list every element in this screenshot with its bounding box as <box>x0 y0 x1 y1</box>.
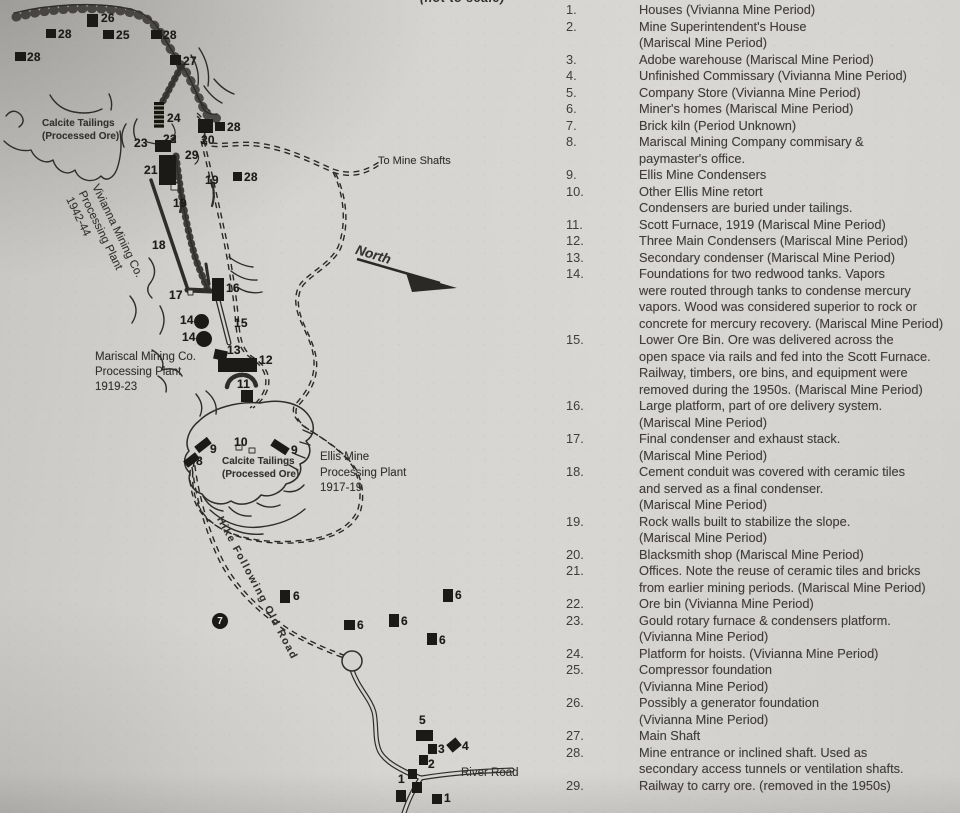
legend-item-number: 2. <box>566 19 577 36</box>
legend-text-line: Miner's homes (Mariscal Mine Period) <box>639 101 959 118</box>
legend-item-number: 17. <box>566 431 584 448</box>
legend-text-line: were routed through tanks to condense me… <box>639 283 959 300</box>
legend-text-line: Condensers are buried under tailings. <box>639 200 959 217</box>
legend-item-text: Offices. Note the reuse of ceramic tiles… <box>639 563 959 596</box>
legend-item-4: 4.Unfinished Commissary (Vivianna Mine P… <box>566 68 959 85</box>
legend-text-line: Company Store (Vivianna Mine Period) <box>639 85 959 102</box>
legend-text-line: Possibly a generator foundation <box>639 695 959 712</box>
legend-item-number: 9. <box>566 167 577 184</box>
legend-item-text: Three Main Condensers (Mariscal Mine Per… <box>639 233 959 250</box>
legend-text-line: (Vivianna Mine Period) <box>639 679 959 696</box>
legend-item-number: 16. <box>566 398 584 415</box>
legend-item-text: Main Shaft <box>639 728 959 745</box>
legend-item-number: 29. <box>566 778 584 795</box>
legend-text-line: Mariscal Mining Company commisary & <box>639 134 959 151</box>
legend-item-25: 25.Compressor foundation(Vivianna Mine P… <box>566 662 959 695</box>
legend-text-line: Ore bin (Vivianna Mine Period) <box>639 596 959 613</box>
legend-text-line: paymaster's office. <box>639 151 959 168</box>
legend-item-8: 8.Mariscal Mining Company commisary &pay… <box>566 134 959 167</box>
legend-item-text: Ore bin (Vivianna Mine Period) <box>639 596 959 613</box>
legend-item-number: 13. <box>566 250 584 267</box>
legend-item-number: 19. <box>566 514 584 531</box>
legend-item-text: Miner's homes (Mariscal Mine Period) <box>639 101 959 118</box>
legend-text-line: vapors. Wood was considered superior to … <box>639 299 959 316</box>
legend-item-text: Company Store (Vivianna Mine Period) <box>639 85 959 102</box>
legend-item-text: Ellis Mine Condensers <box>639 167 959 184</box>
legend-item-number: 6. <box>566 101 577 118</box>
legend-item-text: Rock walls built to stabilize the slope.… <box>639 514 959 547</box>
legend-text-line: Foundations for two redwood tanks. Vapor… <box>639 266 959 283</box>
legend-text-line: (Vivianna Mine Period) <box>639 712 959 729</box>
legend-item-number: 23. <box>566 613 584 630</box>
legend-item-number: 14. <box>566 266 584 283</box>
legend-item-number: 21. <box>566 563 584 580</box>
legend-item-23: 23.Gould rotary furnace & condensers pla… <box>566 613 959 646</box>
legend-item-text: Platform for hoists. (Vivianna Mine Peri… <box>639 646 959 663</box>
legend-item-7: 7.Brick kiln (Period Unknown) <box>566 118 959 135</box>
legend-item-number: 27. <box>566 728 584 745</box>
legend-item-2: 2.Mine Superintendent's House(Mariscal M… <box>566 19 959 52</box>
legend-item-number: 18. <box>566 464 584 481</box>
legend-text-line: Large platform, part of ore delivery sys… <box>639 398 959 415</box>
legend-text-line: Mine entrance or inclined shaft. Used as <box>639 745 959 762</box>
legend-item-20: 20.Blacksmith shop (Mariscal Mine Period… <box>566 547 959 564</box>
legend-item-28: 28.Mine entrance or inclined shaft. Used… <box>566 745 959 778</box>
legend-item-text: Brick kiln (Period Unknown) <box>639 118 959 135</box>
legend-item-text: Adobe warehouse (Mariscal Mine Period) <box>639 52 959 69</box>
legend-text-line: (Vivianna Mine Period) <box>639 629 959 646</box>
legend-text-line: from earlier mining periods. (Mariscal M… <box>639 580 959 597</box>
legend-item-number: 3. <box>566 52 577 69</box>
legend-item-29: 29.Railway to carry ore. (removed in the… <box>566 778 959 795</box>
legend-text-line: Secondary condenser (Mariscal Mine Perio… <box>639 250 959 267</box>
legend-item-text: Mine entrance or inclined shaft. Used as… <box>639 745 959 778</box>
map-labels-layer: Calcite Tailings (Processed Ore)Vivianna… <box>0 0 570 813</box>
legend-text-line: Offices. Note the reuse of ceramic tiles… <box>639 563 959 580</box>
legend-item-text: Large platform, part of ore delivery sys… <box>639 398 959 431</box>
legend-item-text: Possibly a generator foundation(Vivianna… <box>639 695 959 728</box>
legend-item-13: 13.Secondary condenser (Mariscal Mine Pe… <box>566 250 959 267</box>
legend-item-number: 5. <box>566 85 577 102</box>
page-title-fragment: (not to scale) <box>420 0 505 5</box>
legend-item-text: Lower Ore Bin. Ore was delivered across … <box>639 332 959 398</box>
legend-text-line: Ellis Mine Condensers <box>639 167 959 184</box>
legend-item-number: 28. <box>566 745 584 762</box>
legend-text-line: (Mariscal Mine Period) <box>639 35 959 52</box>
map-label-ellis-plant: Ellis Mine Processing Plant 1917-19 <box>320 450 406 497</box>
legend-item-number: 10. <box>566 184 584 201</box>
legend-item-1: 1.Houses (Vivianna Mine Period) <box>566 2 959 19</box>
legend-item-text: Cement conduit was covered with ceramic … <box>639 464 959 514</box>
legend-text-line: Unfinished Commissary (Vivianna Mine Per… <box>639 68 959 85</box>
legend-text-line: Other Ellis Mine retort <box>639 184 959 201</box>
legend-item-text: Blacksmith shop (Mariscal Mine Period) <box>639 547 959 564</box>
legend-item-11: 11.Scott Furnace, 1919 (Mariscal Mine Pe… <box>566 217 959 234</box>
legend-text-line: Adobe warehouse (Mariscal Mine Period) <box>639 52 959 69</box>
legend-item-number: 22. <box>566 596 584 613</box>
legend-text-line: Railway to carry ore. (removed in the 19… <box>639 778 959 795</box>
legend-item-21: 21.Offices. Note the reuse of ceramic ti… <box>566 563 959 596</box>
legend-text-line: (Mariscal Mine Period) <box>639 415 959 432</box>
legend-item-text: Mariscal Mining Company commisary &payma… <box>639 134 959 167</box>
legend-text-line: Mine Superintendent's House <box>639 19 959 36</box>
map-label-river-road: River Road <box>461 767 519 780</box>
legend-text-line: Gould rotary furnace & condensers platfo… <box>639 613 959 630</box>
legend-text-line: Brick kiln (Period Unknown) <box>639 118 959 135</box>
map-label-calcite-tailings-lower: Calcite Tailings (Processed Ore) <box>222 456 299 481</box>
legend-text-line: secondary access tunnels or ventilation … <box>639 761 959 778</box>
legend-item-24: 24.Platform for hoists. (Vivianna Mine P… <box>566 646 959 663</box>
legend-item-number: 20. <box>566 547 584 564</box>
legend-item-22: 22.Ore bin (Vivianna Mine Period) <box>566 596 959 613</box>
legend-item-text: Railway to carry ore. (removed in the 19… <box>639 778 959 795</box>
legend-item-27: 27.Main Shaft <box>566 728 959 745</box>
legend-item-15: 15.Lower Ore Bin. Ore was delivered acro… <box>566 332 959 398</box>
legend-text-line: open space via rails and fed into the Sc… <box>639 349 959 366</box>
legend-item-text: Final condenser and exhaust stack.(Maris… <box>639 431 959 464</box>
legend-item-text: Houses (Vivianna Mine Period) <box>639 2 959 19</box>
map-label-calcite-tailings-upper: Calcite Tailings (Processed Ore) <box>42 118 119 143</box>
legend-text-line: Platform for hoists. (Vivianna Mine Peri… <box>639 646 959 663</box>
map-label-hike-following-old-road: Hike Following Old Road <box>214 515 299 662</box>
legend-item-text: Scott Furnace, 1919 (Mariscal Mine Perio… <box>639 217 959 234</box>
legend-item-19: 19.Rock walls built to stabilize the slo… <box>566 514 959 547</box>
legend-item-number: 26. <box>566 695 584 712</box>
legend-text-line: Cement conduit was covered with ceramic … <box>639 464 959 481</box>
legend-item-10: 10.Other Ellis Mine retortCondensers are… <box>566 184 959 217</box>
map-label-to-mine-shafts: To Mine Shafts <box>378 155 451 168</box>
legend-text-line: (Mariscal Mine Period) <box>639 530 959 547</box>
legend-text-line: Rock walls built to stabilize the slope. <box>639 514 959 531</box>
legend-text-line: (Mariscal Mine Period) <box>639 448 959 465</box>
legend-item-text: Compressor foundation(Vivianna Mine Peri… <box>639 662 959 695</box>
legend-item-12: 12.Three Main Condensers (Mariscal Mine … <box>566 233 959 250</box>
legend-item-16: 16.Large platform, part of ore delivery … <box>566 398 959 431</box>
legend-item-text: Unfinished Commissary (Vivianna Mine Per… <box>639 68 959 85</box>
scanned-page: { "page": { "top_edge_fragment": "(not t… <box>0 0 960 813</box>
legend-text-line: Railway, timbers, ore bins, and equipmen… <box>639 365 959 382</box>
legend-text-line: and served as a final condenser. <box>639 481 959 498</box>
map-label-mariscal-plant: Mariscal Mining Co. Processing Plant 191… <box>95 350 196 395</box>
legend-item-number: 1. <box>566 2 577 19</box>
legend-item-number: 24. <box>566 646 584 663</box>
legend-item-text: Secondary condenser (Mariscal Mine Perio… <box>639 250 959 267</box>
legend-item-18: 18.Cement conduit was covered with ceram… <box>566 464 959 514</box>
map-label-vivianna-plant: Vivianna Mining Co. Processing Plant 194… <box>62 182 146 293</box>
legend-item-26: 26.Possibly a generator foundation(Vivia… <box>566 695 959 728</box>
legend-text-line: (Mariscal Mine Period) <box>639 497 959 514</box>
legend-item-6: 6.Miner's homes (Mariscal Mine Period) <box>566 101 959 118</box>
legend-text-line: Final condenser and exhaust stack. <box>639 431 959 448</box>
legend-item-text: Mine Superintendent's House(Mariscal Min… <box>639 19 959 52</box>
legend-item-9: 9.Ellis Mine Condensers <box>566 167 959 184</box>
legend-item-number: 4. <box>566 68 577 85</box>
legend-item-number: 8. <box>566 134 577 151</box>
legend-list: 1.Houses (Vivianna Mine Period)2.Mine Su… <box>566 2 959 794</box>
legend-item-3: 3.Adobe warehouse (Mariscal Mine Period) <box>566 52 959 69</box>
legend-item-text: Gould rotary furnace & condensers platfo… <box>639 613 959 646</box>
legend-item-text: Other Ellis Mine retortCondensers are bu… <box>639 184 959 217</box>
legend-text-line: Compressor foundation <box>639 662 959 679</box>
legend-item-17: 17.Final condenser and exhaust stack.(Ma… <box>566 431 959 464</box>
legend-text-line: Three Main Condensers (Mariscal Mine Per… <box>639 233 959 250</box>
legend-text-line: Lower Ore Bin. Ore was delivered across … <box>639 332 959 349</box>
legend-text-line: Scott Furnace, 1919 (Mariscal Mine Perio… <box>639 217 959 234</box>
legend-item-5: 5.Company Store (Vivianna Mine Period) <box>566 85 959 102</box>
legend-item-number: 15. <box>566 332 584 349</box>
legend-text-line: Main Shaft <box>639 728 959 745</box>
legend-text-line: Blacksmith shop (Mariscal Mine Period) <box>639 547 959 564</box>
legend-text-line: Houses (Vivianna Mine Period) <box>639 2 959 19</box>
legend-text-line: removed during the 1950s. (Mariscal Mine… <box>639 382 959 399</box>
legend-item-text: Foundations for two redwood tanks. Vapor… <box>639 266 959 332</box>
map-label-north: North <box>354 243 393 267</box>
legend-text-line: concrete for mercury recovery. (Mariscal… <box>639 316 959 333</box>
legend-item-number: 7. <box>566 118 577 135</box>
legend-item-number: 11. <box>566 217 583 234</box>
legend-item-number: 12. <box>566 233 584 250</box>
legend-item-14: 14.Foundations for two redwood tanks. Va… <box>566 266 959 332</box>
legend-item-number: 25. <box>566 662 584 679</box>
